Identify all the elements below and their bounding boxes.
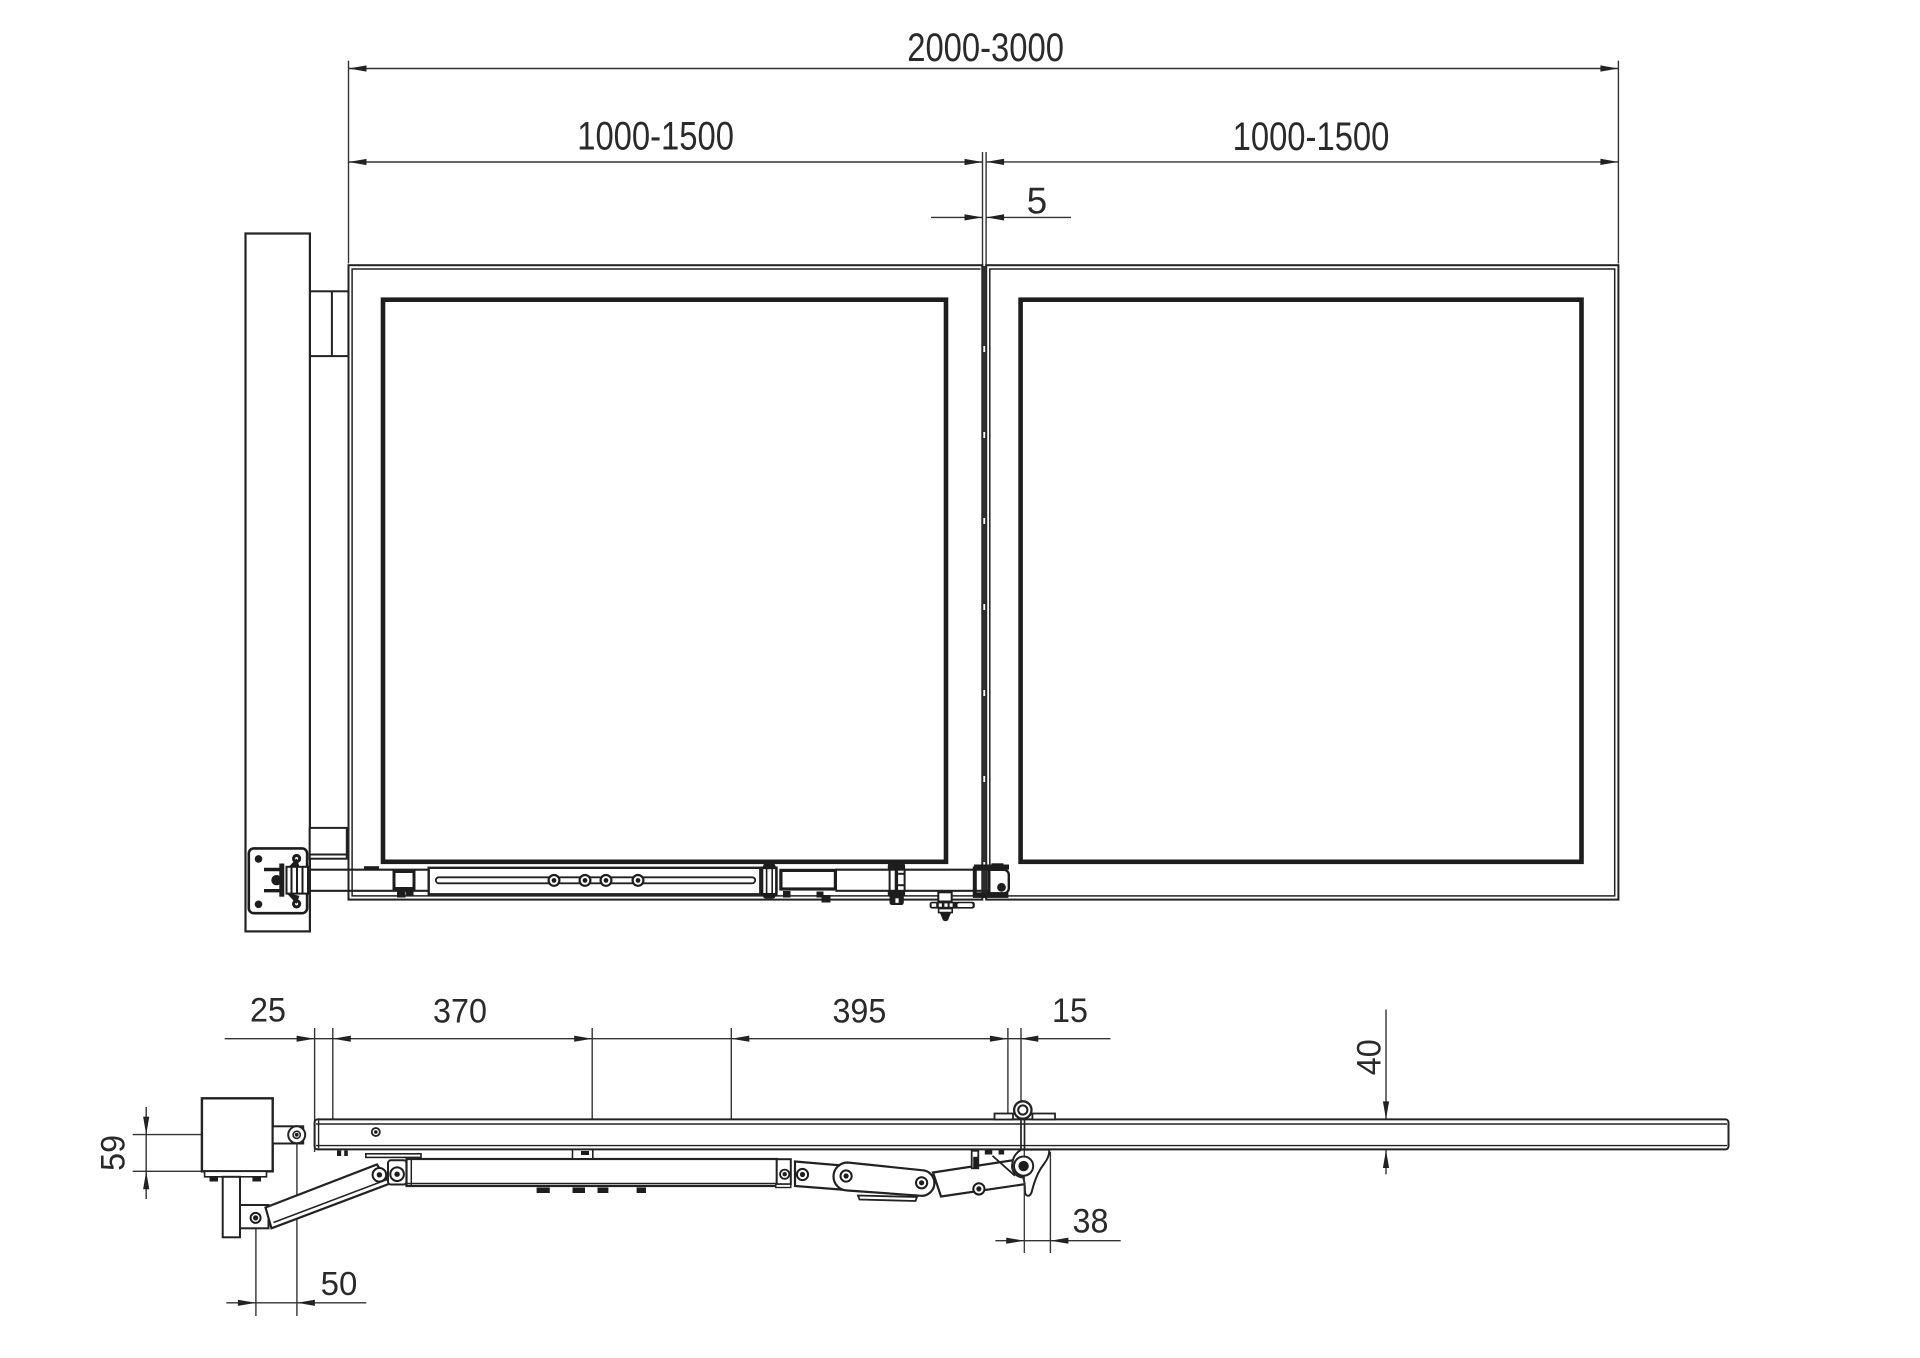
svg-text:1000-1500: 1000-1500 [1233,114,1390,159]
svg-text:395: 395 [832,993,886,1031]
svg-text:1000-1500: 1000-1500 [577,113,734,158]
svg-text:2000-3000: 2000-3000 [907,25,1064,70]
svg-text:15: 15 [1052,992,1088,1030]
svg-text:59: 59 [95,1135,133,1171]
svg-text:25: 25 [250,992,286,1030]
svg-text:5: 5 [1027,181,1048,222]
svg-text:50: 50 [321,1265,358,1302]
svg-text:370: 370 [433,993,487,1031]
svg-text:40: 40 [1351,1039,1389,1075]
svg-text:38: 38 [1073,1203,1109,1241]
